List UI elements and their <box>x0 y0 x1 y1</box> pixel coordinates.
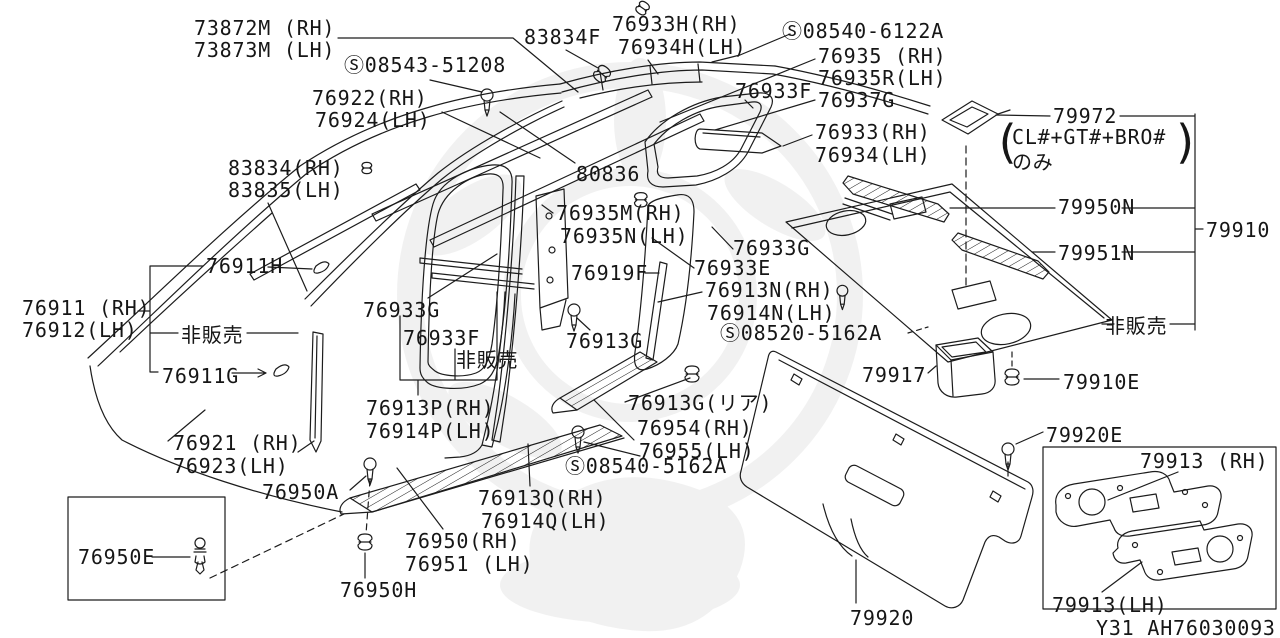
part-label: 76922(RH) <box>312 87 428 109</box>
part-label: 79910 <box>1206 219 1270 241</box>
part-label: 76933E <box>694 257 771 279</box>
part-label: 76913N(RH) <box>705 279 833 301</box>
part-label: 76913G(リア) <box>628 392 772 414</box>
part-label: 80836 <box>576 163 640 185</box>
part-label: 76935M(RH) <box>556 202 684 224</box>
part-label: 76911 (RH) <box>22 297 150 319</box>
part-number-labels: 73872M (RH)73873M (LH)Ⓢ08543-5120883834F… <box>0 0 1280 638</box>
part-label: 76933F <box>735 80 812 102</box>
part-label: 76935N(LH) <box>560 225 688 247</box>
part-label: CL#+GT#+BRO# <box>1012 126 1166 148</box>
part-label: 76913G <box>566 330 643 352</box>
part-label: 非販売 <box>456 349 518 371</box>
part-label: 76934H(LH) <box>618 36 746 58</box>
part-label: 76950H <box>340 579 417 601</box>
part-label: 83835(LH) <box>228 179 344 201</box>
part-label: 76911H <box>206 255 283 277</box>
part-label: Ⓢ08540-5162A <box>565 455 727 477</box>
part-label: 83834(RH) <box>228 157 344 179</box>
drawing-code: Y31 AH76030093 <box>1096 617 1276 638</box>
part-label: 76933H(RH) <box>612 13 740 35</box>
part-label: 79920E <box>1046 424 1123 446</box>
part-label: 76935R(LH) <box>818 67 946 89</box>
part-label: 76912(LH) <box>22 319 138 341</box>
part-label: 76924(LH) <box>315 109 431 131</box>
part-label: Ⓢ08543-51208 <box>344 54 506 76</box>
part-label: 76921 (RH) <box>173 432 301 454</box>
part-label: 非販売 <box>1105 315 1167 337</box>
part-label: 76950E <box>78 546 155 568</box>
part-label: 76937G <box>818 89 895 111</box>
part-label: 76950A <box>262 481 339 503</box>
part-label: 79972 <box>1053 105 1117 127</box>
part-label: 79910E <box>1063 371 1140 393</box>
part-label: 76914P(LH) <box>366 420 494 442</box>
part-label: 76933G <box>363 299 440 321</box>
part-label: 76950(RH) <box>405 530 521 552</box>
part-label: 76913Q(RH) <box>478 487 606 509</box>
part-label: Ⓢ08540-6122A <box>782 20 944 42</box>
part-label: 79950N <box>1058 196 1135 218</box>
part-label: 76919F <box>571 262 648 284</box>
part-label: 76933F <box>403 327 480 349</box>
part-label: 73872M (RH) <box>194 17 335 39</box>
part-label: 76923(LH) <box>173 455 289 477</box>
part-label: 79917 <box>862 364 926 386</box>
part-label: 76913P(RH) <box>366 397 494 419</box>
part-label: 非販売 <box>181 324 243 346</box>
part-label: 73873M (LH) <box>194 39 335 61</box>
part-label: 79920 <box>850 607 914 629</box>
part-label: 76951 (LH) <box>405 553 533 575</box>
part-label: 76933(RH) <box>815 121 931 143</box>
part-label: のみ <box>1012 151 1054 173</box>
part-label: 76954(RH) <box>637 417 753 439</box>
part-label: 76911G <box>162 365 239 387</box>
part-label: 76934(LH) <box>815 144 931 166</box>
part-label: 79913 (RH) <box>1140 450 1268 472</box>
part-label: ) <box>1172 118 1200 166</box>
part-label: Ⓢ08520-5162A <box>720 322 882 344</box>
part-label: 79951N <box>1058 242 1135 264</box>
part-label: 79913(LH) <box>1052 594 1168 616</box>
parts-diagram-page: 73872M (RH)73873M (LH)Ⓢ08543-5120883834F… <box>0 0 1280 638</box>
part-label: 76935 (RH) <box>818 45 946 67</box>
part-label: 83834F <box>524 26 601 48</box>
